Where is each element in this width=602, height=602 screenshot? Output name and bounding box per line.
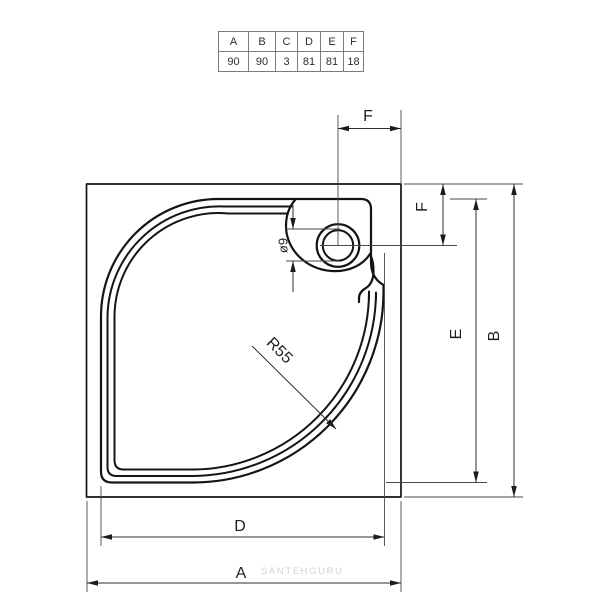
arrowhead-a-left	[87, 580, 98, 586]
label-a: A	[236, 565, 247, 582]
arrowhead-drain-up	[290, 261, 296, 272]
dimension-lines-group	[87, 129, 514, 584]
arrowhead-f-right-down	[440, 235, 446, 246]
arrowhead-e-up	[473, 199, 479, 210]
arrowhead-f-right-up	[440, 184, 446, 195]
watermark-text: SANTEHGURU	[261, 566, 344, 577]
arrowheads-group	[87, 126, 517, 586]
arrowhead-d-left	[101, 534, 112, 540]
arrowhead-f-top-right	[390, 126, 401, 132]
label-e: E	[448, 329, 465, 340]
technical-drawing-page: A B C D E F 90 90 3 81 81 18	[0, 0, 602, 602]
arrowhead-drain-down	[290, 218, 296, 229]
label-f-top: F	[363, 108, 373, 125]
drain-pocket-outline	[286, 200, 374, 302]
arrowhead-a-right	[390, 580, 401, 586]
arrowhead-e-down	[473, 472, 479, 483]
label-drain-diameter: ø9	[276, 238, 291, 253]
extension-lines-group	[87, 110, 523, 592]
label-f-right: F	[414, 202, 431, 212]
arrowhead-f-top-left	[338, 126, 349, 132]
basin-edge-outline	[115, 213, 370, 469]
radius-leader-line	[252, 346, 336, 429]
shower-tray-drawing: F F E B D A R55 ø9	[0, 0, 602, 602]
tray-rim-outline-middle	[108, 206, 377, 476]
label-radius: R55	[263, 334, 296, 367]
tray-outline-group	[87, 184, 402, 497]
arrowhead-b-up	[511, 184, 517, 195]
tray-rim-outline-outer	[101, 199, 384, 483]
label-b: B	[486, 331, 503, 342]
label-d: D	[234, 518, 246, 535]
arrowhead-b-down	[511, 486, 517, 497]
arrowhead-d-right	[374, 534, 385, 540]
